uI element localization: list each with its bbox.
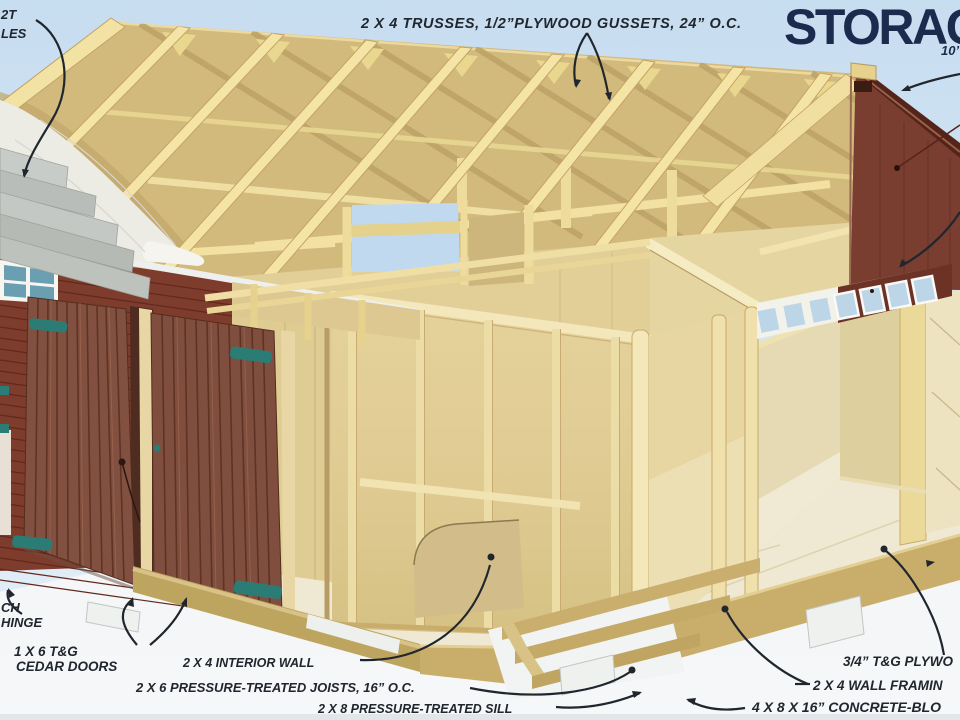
svg-text:2T: 2T — [0, 7, 17, 22]
svg-text:CEDAR DOORS: CEDAR DOORS — [16, 659, 117, 674]
svg-text:2 X 6 PRESSURE-TREATED JOISTS,: 2 X 6 PRESSURE-TREATED JOISTS, 16” O.C. — [135, 680, 415, 695]
svg-text:2 X 8 PRESSURE-TREATED SILL: 2 X 8 PRESSURE-TREATED SILL — [317, 702, 512, 716]
svg-text:1 X 6 T&G: 1 X 6 T&G — [14, 644, 78, 659]
svg-text:3/4” T&G PLYWO: 3/4” T&G PLYWO — [843, 654, 954, 669]
svg-text:CH: CH — [1, 600, 20, 615]
svg-text:HINGE: HINGE — [1, 615, 43, 630]
svg-text:10’: 10’ — [941, 43, 959, 58]
svg-text:2 X 4 TRUSSES, 1/2”PLYWOOD GUS: 2 X 4 TRUSSES, 1/2”PLYWOOD GUSSETS, 24” … — [360, 16, 742, 32]
svg-text:STORAGE: STORAGE — [784, 0, 960, 55]
svg-text:2 X 4 WALL FRAMIN: 2 X 4 WALL FRAMIN — [812, 678, 943, 693]
svg-text:LES: LES — [1, 26, 27, 41]
svg-text:2 X 4 INTERIOR WALL: 2 X 4 INTERIOR WALL — [182, 656, 314, 670]
svg-text:4 X 8 X 16” CONCRETE-BLO: 4 X 8 X 16” CONCRETE-BLO — [751, 699, 941, 715]
